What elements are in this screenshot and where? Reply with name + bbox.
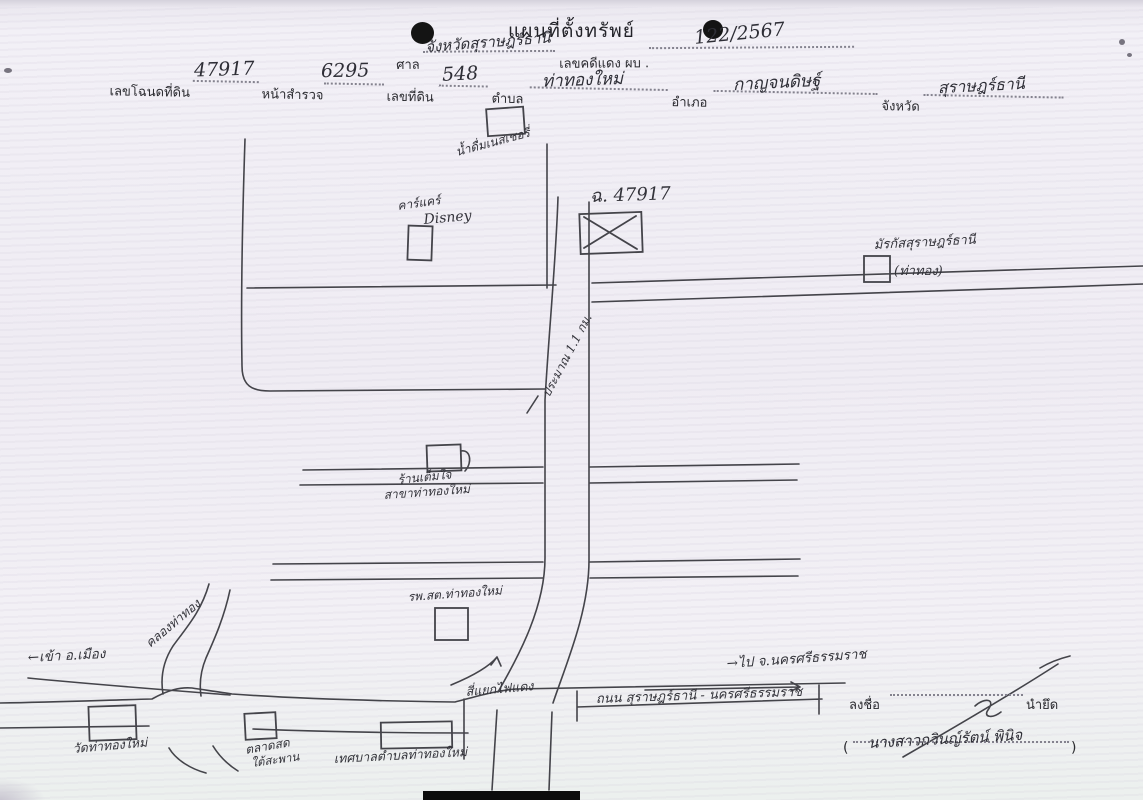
label-health-center: รพ.สต.ท่าทองใหม่ (407, 583, 504, 604)
label-municipality: เทศบาลตำบลท่าทองใหม่ (333, 744, 469, 766)
road-right-lower (592, 284, 1143, 302)
scanned-document: แผนที่ตั้งทรัพย์ ศาล จังหวัดสุราษฎร์ธานี… (0, 0, 1143, 800)
label-markas-1: มัรกัสสุราษฎร์ธานี (873, 232, 977, 253)
building-health-center (435, 608, 468, 640)
sign-label: ลงชื่อ (849, 694, 880, 715)
building-market (244, 712, 276, 740)
road-street2-left (271, 562, 543, 580)
label-to-nakhon: →ไป จ.นครศรีธรรมราช (726, 645, 869, 672)
road-junction-tick (527, 396, 538, 413)
road-main-vertical-right (553, 202, 589, 703)
label-to-city: ←เข้า อ.เมือง (27, 646, 107, 666)
paren-close: ) (1071, 740, 1076, 756)
property-x-mark (584, 216, 637, 249)
label-car-care-en: Disney (422, 208, 473, 228)
road-left-loop (242, 139, 545, 391)
road-main-vertical-left (498, 197, 558, 692)
sign-role: นำยึด (1026, 694, 1058, 715)
label-markas-2: (ท่าทอง) (894, 264, 943, 279)
road-right-upper (592, 266, 1143, 283)
label-property-no: ฉ. 47917 (589, 183, 671, 207)
paren-open: ( (843, 740, 848, 756)
label-canal: คลองท่าทอง (142, 595, 203, 650)
road-bottom-lower-mid (253, 729, 468, 733)
hand-drawn-map: น้ำดื่มเนสเชอรี่ คาร์แคร์ Disney ฉ. 4791… (0, 0, 1143, 800)
road-top-cross (247, 285, 556, 288)
road-bottom-lower-left (0, 726, 149, 728)
label-red-light: สี่แยกไฟแดง (465, 677, 535, 699)
road-street2-right (590, 559, 800, 578)
label-water-shop: น้ำดื่มเนสเชอรี่ (454, 123, 534, 159)
sign-dotted-line (890, 694, 1023, 696)
label-temple: วัดท่าทองใหม่ (72, 734, 150, 756)
building-markas (864, 256, 890, 282)
canal-bank-right (200, 590, 238, 771)
road-below-main (492, 710, 552, 790)
building-car-care (407, 226, 432, 261)
road-street1-right (590, 464, 799, 483)
